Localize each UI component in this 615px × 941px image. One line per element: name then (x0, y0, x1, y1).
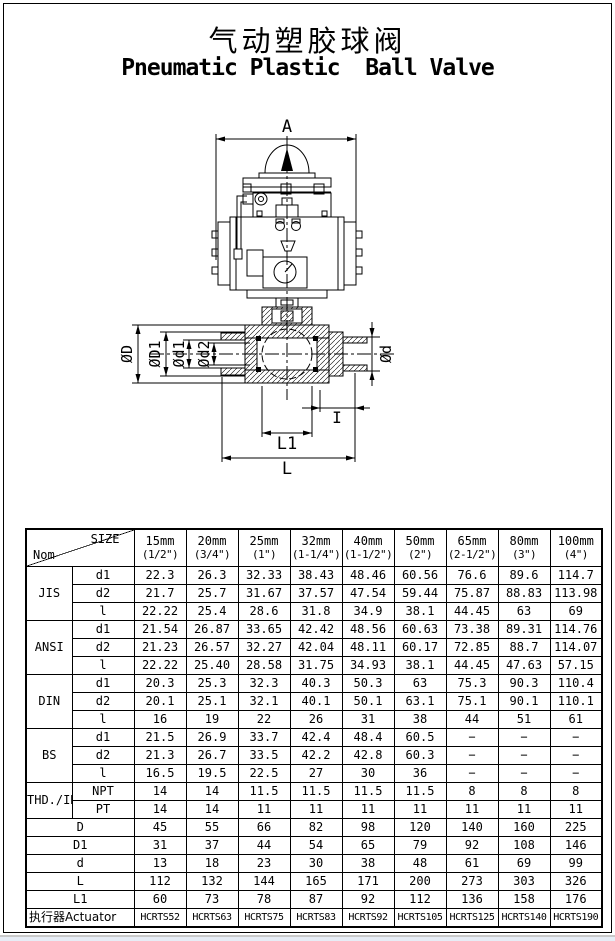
table-row: ANSId121.5426.8733.6542.4248.5660.6373.3… (26, 621, 602, 639)
table-cell: 60.17 (394, 639, 446, 657)
table-cell: 25.40 (186, 657, 238, 675)
row-label: d2 (72, 585, 134, 603)
table-cell: 55 (186, 819, 238, 837)
table-cell: 44 (238, 837, 290, 855)
table-cell: 34.9 (342, 603, 394, 621)
table-cell: 38.1 (394, 603, 446, 621)
table-row: JISd122.326.332.3338.4348.4660.5676.689.… (26, 567, 602, 585)
table-cell: − (498, 747, 550, 765)
valve-technical-drawing: A ØD ØD1 Ød1 Ød2 Ød I L1 L (0, 100, 615, 500)
table-cell: 60 (134, 891, 186, 909)
table-cell: 20.3 (134, 675, 186, 693)
table-cell: 108 (498, 837, 550, 855)
table-cell: − (550, 747, 602, 765)
table-cell: 90.3 (498, 675, 550, 693)
table-cell: 69 (498, 855, 550, 873)
row-label: d (26, 855, 134, 873)
size-inch: (2") (395, 549, 446, 562)
table-cell: 26.3 (186, 567, 238, 585)
table-cell: 40.3 (290, 675, 342, 693)
table-cell: 21.5 (134, 729, 186, 747)
table-cell: 60.56 (394, 567, 446, 585)
size-column-header: 40mm(1-1/2") (342, 529, 394, 567)
table-cell: 33.5 (238, 747, 290, 765)
table-cell: 60.63 (394, 621, 446, 639)
size-inch: (3/4") (187, 549, 238, 562)
table-cell: 89.6 (498, 567, 550, 585)
table-cell: 75.87 (446, 585, 498, 603)
table-cell: 19 (186, 711, 238, 729)
table-cell: 45 (134, 819, 186, 837)
row-label: d1 (72, 567, 134, 585)
table-cell: 25.4 (186, 603, 238, 621)
table-cell: 44.45 (446, 603, 498, 621)
actuator-model-cell: HCRTS105 (394, 909, 446, 928)
row-label: d2 (72, 639, 134, 657)
size-column-header: 32mm(1-1/4") (290, 529, 342, 567)
size-mm: 80mm (499, 535, 550, 549)
table-cell: 42.04 (290, 639, 342, 657)
actuator-model-cell: HCRTS125 (446, 909, 498, 928)
table-cell: − (446, 747, 498, 765)
table-cell: 110.1 (550, 693, 602, 711)
actuator-model-cell: HCRTS190 (550, 909, 602, 928)
table-row: D4555668298120140160225 (26, 819, 602, 837)
row-label: d1 (72, 729, 134, 747)
size-label: SIZE (91, 533, 120, 547)
table-row: DINd120.325.332.340.350.36375.390.3110.4 (26, 675, 602, 693)
table-cell: − (446, 765, 498, 783)
table-cell: 89.31 (498, 621, 550, 639)
table-cell: 120 (394, 819, 446, 837)
table-cell: 132 (186, 873, 238, 891)
size-inch: (2-1/2") (447, 549, 498, 562)
row-label: D1 (26, 837, 134, 855)
table-cell: 11.5 (238, 783, 290, 801)
table-cell: 11 (394, 801, 446, 819)
size-column-header: 15mm(1/2") (134, 529, 186, 567)
table-cell: 34.93 (342, 657, 394, 675)
table-row: D131374454657992108146 (26, 837, 602, 855)
table-cell: 75.1 (446, 693, 498, 711)
table-cell: 26.57 (186, 639, 238, 657)
table-cell: − (550, 765, 602, 783)
size-mm: 25mm (239, 535, 290, 549)
dim-label-capital-d: ØD (118, 345, 136, 363)
table-cell: 326 (550, 873, 602, 891)
table-cell: 28.6 (238, 603, 290, 621)
table-cell: 42.8 (342, 747, 394, 765)
table-cell: − (550, 729, 602, 747)
table-cell: 60.5 (394, 729, 446, 747)
table-cell: 8 (446, 783, 498, 801)
table-cell: 30 (342, 765, 394, 783)
standard-group-label: JIS (26, 567, 72, 621)
table-cell: 171 (342, 873, 394, 891)
dimension-spec-table: SIZE Nom 15mm(1/2") 20mm(3/4") 25mm(1") … (25, 528, 603, 928)
table-cell: 27 (290, 765, 342, 783)
table-cell: 25.1 (186, 693, 238, 711)
row-label: NPT (72, 783, 134, 801)
size-column-header: 20mm(3/4") (186, 529, 238, 567)
table-cell: 112 (394, 891, 446, 909)
table-cell: 114.76 (550, 621, 602, 639)
table-row: PT141411111111111111 (26, 801, 602, 819)
table-cell: 32.33 (238, 567, 290, 585)
size-mm: 50mm (395, 535, 446, 549)
row-label: l (72, 711, 134, 729)
table-cell: 11 (550, 801, 602, 819)
row-label: d1 (72, 621, 134, 639)
row-label: L1 (26, 891, 134, 909)
dim-label-i: I (332, 408, 342, 427)
table-cell: 69 (550, 603, 602, 621)
row-label: d2 (72, 747, 134, 765)
table-cell: 110.4 (550, 675, 602, 693)
table-row: l22.2225.4028.5831.7534.9338.144.4547.63… (26, 657, 602, 675)
standard-group-label: THD./IN (26, 783, 72, 819)
size-mm: 40mm (343, 535, 394, 549)
size-mm: 100mm (551, 535, 602, 549)
table-cell: 18 (186, 855, 238, 873)
table-cell: 63 (394, 675, 446, 693)
table-cell: 200 (394, 873, 446, 891)
dim-label-a: A (282, 117, 292, 137)
table-cell: 38.43 (290, 567, 342, 585)
size-column-header: 50mm(2") (394, 529, 446, 567)
table-cell: 21.54 (134, 621, 186, 639)
table-cell: 14 (134, 801, 186, 819)
size-mm: 65mm (447, 535, 498, 549)
table-cell: 32.1 (238, 693, 290, 711)
table-cell: 48.46 (342, 567, 394, 585)
valve-geometry (132, 134, 395, 462)
table-cell: 40.1 (290, 693, 342, 711)
table-cell: 48 (394, 855, 446, 873)
dim-label-l: L (282, 459, 292, 479)
table-cell: 59.44 (394, 585, 446, 603)
table-cell: 22 (238, 711, 290, 729)
table-cell: 33.65 (238, 621, 290, 639)
table-cell: 33.7 (238, 729, 290, 747)
table-cell: 144 (238, 873, 290, 891)
table-cell: 25.7 (186, 585, 238, 603)
table-cell: 26.87 (186, 621, 238, 639)
table-cell: 22.5 (238, 765, 290, 783)
table-cell: 25.3 (186, 675, 238, 693)
size-column-header: 25mm(1") (238, 529, 290, 567)
table-cell: 176 (550, 891, 602, 909)
table-cell: 31 (134, 837, 186, 855)
table-cell: 65 (342, 837, 394, 855)
standard-group-label: BS (26, 729, 72, 783)
page-title-chinese: 气动塑胶球阀 (0, 18, 615, 60)
table-cell: 82 (290, 819, 342, 837)
table-cell: 11.5 (394, 783, 446, 801)
table-cell: 20.1 (134, 693, 186, 711)
table-cell: 44 (446, 711, 498, 729)
table-cell: 31.75 (290, 657, 342, 675)
table-row: d221.2326.5732.2742.0448.1160.1772.8588.… (26, 639, 602, 657)
actuator-model-cell: HCRTS83 (290, 909, 342, 928)
table-row: d221.725.731.6737.5747.5459.4475.8788.83… (26, 585, 602, 603)
table-cell: 26 (290, 711, 342, 729)
table-cell: 79 (394, 837, 446, 855)
row-label: l (72, 657, 134, 675)
table-cell: 51 (498, 711, 550, 729)
actuator-row: 执行器ActuatorHCRTS52HCRTS63HCRTS75HCRTS83H… (26, 909, 602, 928)
table-cell: 61 (446, 855, 498, 873)
dim-label-small-d: Ød (377, 345, 395, 363)
table-cell: 32.3 (238, 675, 290, 693)
table-cell: 16.5 (134, 765, 186, 783)
table-cell: 73 (186, 891, 238, 909)
table-cell: 50.1 (342, 693, 394, 711)
table-cell: 76.6 (446, 567, 498, 585)
table-cell: 61 (550, 711, 602, 729)
standard-group-label: ANSI (26, 621, 72, 675)
table-cell: 75.3 (446, 675, 498, 693)
table-cell: 21.3 (134, 747, 186, 765)
table-cell: 16 (134, 711, 186, 729)
table-cell: 30 (290, 855, 342, 873)
actuator-model-cell: HCRTS63 (186, 909, 238, 928)
table-cell: 26.9 (186, 729, 238, 747)
dim-label-l1: L1 (277, 434, 297, 454)
table-cell: 44.45 (446, 657, 498, 675)
table-cell: 37.57 (290, 585, 342, 603)
table-cell: 22.3 (134, 567, 186, 585)
table-cell: 23 (238, 855, 290, 873)
table-row: l16.519.522.5273036−−− (26, 765, 602, 783)
nom-label: Nom (33, 549, 55, 563)
table-cell: 225 (550, 819, 602, 837)
table-cell: − (498, 729, 550, 747)
row-label: l (72, 603, 134, 621)
table-cell: 160 (498, 819, 550, 837)
table-cell: 50.3 (342, 675, 394, 693)
dim-label-capital-d1: ØD1 (146, 340, 164, 367)
table-cell: 158 (498, 891, 550, 909)
table-cell: 31.67 (238, 585, 290, 603)
actuator-model-cell: HCRTS52 (134, 909, 186, 928)
table-cell: 87 (290, 891, 342, 909)
table-cell: 11 (290, 801, 342, 819)
actuator-row-label: 执行器Actuator (26, 909, 134, 928)
table-cell: 72.85 (446, 639, 498, 657)
table-cell: 99 (550, 855, 602, 873)
size-mm: 15mm (135, 535, 186, 549)
table-row: l161922263138445161 (26, 711, 602, 729)
table-cell: 112 (134, 873, 186, 891)
table-cell: 38 (342, 855, 394, 873)
table-header-row: SIZE Nom 15mm(1/2") 20mm(3/4") 25mm(1") … (26, 529, 602, 567)
size-mm: 20mm (187, 535, 238, 549)
table-cell: 14 (186, 783, 238, 801)
table-cell: 21.7 (134, 585, 186, 603)
table-cell: 48.56 (342, 621, 394, 639)
table-cell: 54 (290, 837, 342, 855)
size-column-header: 80mm(3") (498, 529, 550, 567)
table-row: d220.125.132.140.150.163.175.190.1110.1 (26, 693, 602, 711)
table-cell: 11 (446, 801, 498, 819)
size-inch: (1-1/4") (291, 549, 342, 562)
table-cell: 92 (446, 837, 498, 855)
table-cell: 42.42 (290, 621, 342, 639)
table-row: d131823303848616999 (26, 855, 602, 873)
size-column-header: 100mm(4") (550, 529, 602, 567)
table-cell: 273 (446, 873, 498, 891)
size-column-header: 65mm(2-1/2") (446, 529, 498, 567)
table-cell: 42.2 (290, 747, 342, 765)
table-cell: 36 (394, 765, 446, 783)
table-cell: 11 (238, 801, 290, 819)
table-cell: 88.83 (498, 585, 550, 603)
table-row: BSd121.526.933.742.448.460.5−−− (26, 729, 602, 747)
size-inch: (1") (239, 549, 290, 562)
size-inch: (1/2") (135, 549, 186, 562)
size-mm: 32mm (291, 535, 342, 549)
row-label: PT (72, 801, 134, 819)
table-cell: 90.1 (498, 693, 550, 711)
table-cell: 26.7 (186, 747, 238, 765)
table-cell: 11.5 (290, 783, 342, 801)
table-row: L112132144165171200273303326 (26, 873, 602, 891)
table-cell: 38 (394, 711, 446, 729)
table-cell: 47.63 (498, 657, 550, 675)
table-row: l22.2225.428.631.834.938.144.456369 (26, 603, 602, 621)
row-label: d2 (72, 693, 134, 711)
table-cell: 146 (550, 837, 602, 855)
table-cell: 28.58 (238, 657, 290, 675)
size-inch: (1-1/2") (343, 549, 394, 562)
table-cell: 66 (238, 819, 290, 837)
table-cell: 114.07 (550, 639, 602, 657)
table-row: L16073788792112136158176 (26, 891, 602, 909)
table-cell: 42.4 (290, 729, 342, 747)
table-cell: 11 (342, 801, 394, 819)
table-cell: 31.8 (290, 603, 342, 621)
row-label: l (72, 765, 134, 783)
table-cell: 8 (498, 783, 550, 801)
size-nom-header-cell: SIZE Nom (26, 529, 134, 567)
table-cell: 14 (134, 783, 186, 801)
table-cell: 32.27 (238, 639, 290, 657)
table-cell: 60.3 (394, 747, 446, 765)
table-cell: 11.5 (342, 783, 394, 801)
table-cell: 47.54 (342, 585, 394, 603)
actuator-model-cell: HCRTS75 (238, 909, 290, 928)
table-row: d221.326.733.542.242.860.3−−− (26, 747, 602, 765)
spec-table-body: SIZE Nom 15mm(1/2") 20mm(3/4") 25mm(1") … (26, 529, 602, 927)
table-cell: 14 (186, 801, 238, 819)
table-cell: 113.98 (550, 585, 602, 603)
table-cell: 48.4 (342, 729, 394, 747)
table-cell: 88.7 (498, 639, 550, 657)
table-cell: 22.22 (134, 657, 186, 675)
table-cell: 303 (498, 873, 550, 891)
table-cell: 38.1 (394, 657, 446, 675)
table-cell: 165 (290, 873, 342, 891)
table-cell: 57.15 (550, 657, 602, 675)
table-cell: 11 (498, 801, 550, 819)
table-cell: 114.7 (550, 567, 602, 585)
page-title-english: Pneumatic Plastic Ball Valve (0, 55, 615, 81)
row-label: D (26, 819, 134, 837)
window-edge-blue (0, 937, 615, 941)
table-cell: 22.22 (134, 603, 186, 621)
actuator-model-cell: HCRTS92 (342, 909, 394, 928)
table-cell: 63.1 (394, 693, 446, 711)
table-cell: 8 (550, 783, 602, 801)
table-cell: 63 (498, 603, 550, 621)
row-label: L (26, 873, 134, 891)
table-row: THD./INNPT141411.511.511.511.5888 (26, 783, 602, 801)
table-cell: 136 (446, 891, 498, 909)
table-cell: 31 (342, 711, 394, 729)
size-inch: (3") (499, 549, 550, 562)
size-inch: (4") (551, 549, 602, 562)
table-cell: 140 (446, 819, 498, 837)
table-cell: 73.38 (446, 621, 498, 639)
table-cell: 48.11 (342, 639, 394, 657)
table-cell: 37 (186, 837, 238, 855)
dim-label-small-d1: Ød1 (170, 340, 188, 367)
table-cell: 13 (134, 855, 186, 873)
table-cell: 21.23 (134, 639, 186, 657)
table-cell: − (446, 729, 498, 747)
actuator-model-cell: HCRTS140 (498, 909, 550, 928)
standard-group-label: DIN (26, 675, 72, 729)
table-cell: 92 (342, 891, 394, 909)
dim-label-small-d2: Ød2 (195, 340, 213, 367)
row-label: d1 (72, 675, 134, 693)
table-cell: 78 (238, 891, 290, 909)
table-cell: − (498, 765, 550, 783)
table-cell: 98 (342, 819, 394, 837)
table-cell: 19.5 (186, 765, 238, 783)
